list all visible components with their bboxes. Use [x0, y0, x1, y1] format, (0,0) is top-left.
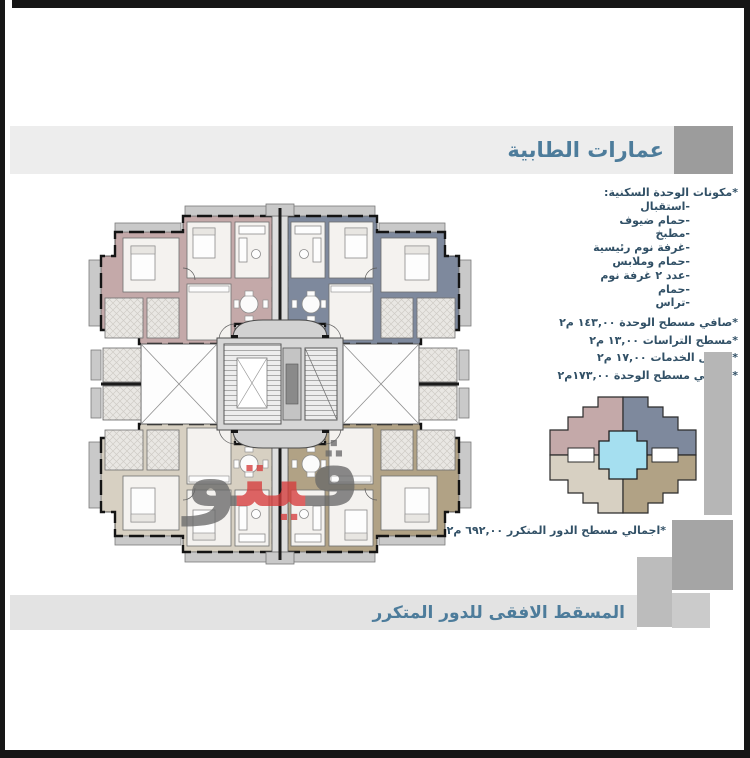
lobby-top [233, 320, 327, 338]
light-well-right [343, 344, 419, 424]
list-item: -حمام [488, 283, 690, 297]
light-well-left [141, 344, 217, 424]
list-item: *اجمالي مسطح الوحدة ١٧٣,٠٠م٢ [478, 367, 738, 385]
list-item: -مطبخ [488, 227, 690, 241]
footer-title: المسقط الافقى للدور المتكرر [10, 603, 637, 623]
list-item: *تحميل الخدمات ١٧,٠٠ م٢ [478, 349, 738, 367]
lobby-bottom [233, 430, 327, 448]
staircase-right [305, 348, 337, 420]
decor-block [704, 352, 732, 515]
list-item: *مسطح التراسات ١٣,٠٠ م٢ [478, 332, 738, 350]
key-notch-right [652, 448, 678, 462]
frame-left-edge [0, 0, 5, 758]
header-bar: عمارات الطابية [10, 126, 674, 174]
page-title: عمارات الطابية [10, 138, 674, 162]
decor-block [637, 557, 672, 627]
frame-right-edge [744, 0, 750, 758]
unit-areas-list: *صافي مسطح الوحدة ١٤٣,٠٠ م٢ *مسطح التراس… [478, 314, 738, 384]
footer-bar: المسقط الافقى للدور المتكرر [10, 595, 637, 630]
unit-components-list: *مكونات الوحدة السكنية: -استقبال -حمام ض… [488, 186, 738, 310]
list-item: *صافي مسطح الوحدة ١٤٣,٠٠ م٢ [478, 314, 738, 332]
list-item: -عدد ٢ غرفة نوم [488, 269, 690, 283]
key-notch-left [568, 448, 594, 462]
header-accent-square [674, 126, 733, 174]
list-item: -استقبال [488, 200, 690, 214]
frame-bottom-edge [0, 750, 750, 758]
floor-plan [85, 198, 475, 568]
frame-top-edge [12, 0, 750, 8]
staircase-left [224, 344, 281, 424]
unit-components-heading: *مكونات الوحدة السكنية: [488, 186, 738, 200]
decor-block [672, 520, 733, 590]
list-item: -غرفة نوم رئيسية [488, 241, 690, 255]
decor-block [672, 593, 710, 628]
key-diagram [538, 394, 708, 516]
list-item: -حمام ضيوف [488, 214, 690, 228]
list-item: -تراس [488, 296, 690, 310]
elevator [283, 348, 301, 420]
page: { "header": { "title": "عمارات الطابية",… [0, 0, 750, 758]
list-item: -حمام وملابس [488, 255, 690, 269]
